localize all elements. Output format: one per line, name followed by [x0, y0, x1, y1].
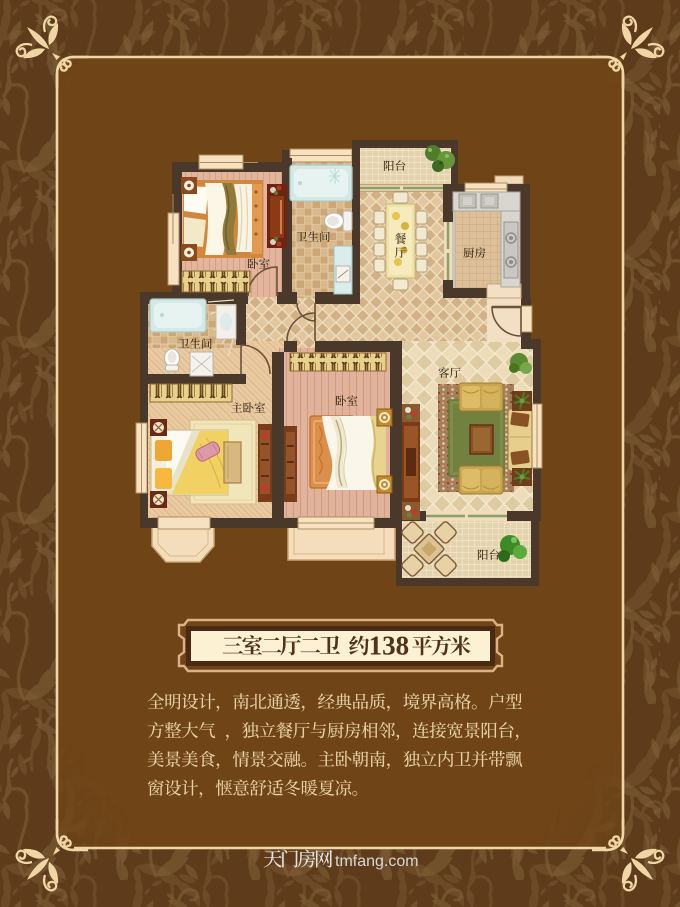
svg-text:138: 138: [369, 631, 410, 661]
svg-text:tmfang.com: tmfang.com: [335, 853, 419, 870]
